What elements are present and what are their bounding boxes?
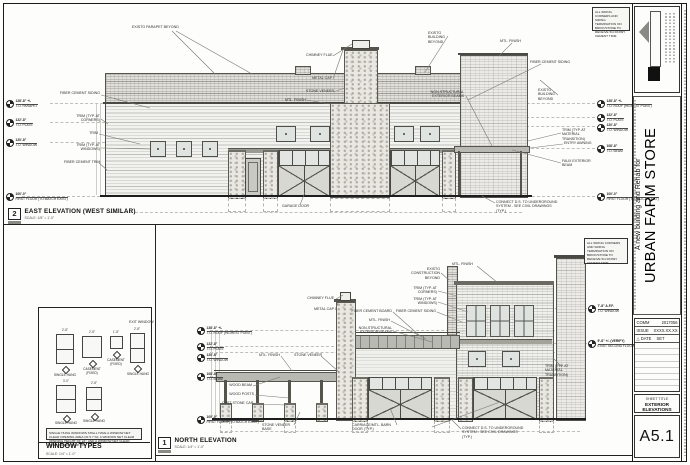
table-row: ISSUEXXXX.XX.XX bbox=[635, 327, 679, 335]
level-marker: 120'-8"T.O. WINDOW bbox=[197, 354, 228, 363]
north-parapet-cap bbox=[454, 281, 554, 285]
callout: METAL CAP bbox=[310, 76, 332, 80]
datum-icon bbox=[597, 114, 605, 122]
foundation bbox=[330, 198, 390, 212]
detail-number: 1 bbox=[158, 437, 171, 449]
level-name: T.O. PLATE bbox=[207, 348, 224, 352]
firm-address-text bbox=[665, 13, 667, 63]
datum-icon bbox=[6, 139, 14, 147]
callout: NON-STRUCTURAL EXTERIOR BEAMS bbox=[430, 90, 464, 99]
callout: TRIM (TYP. AT WINDOWS) bbox=[405, 297, 437, 306]
callout: STONE VENEER bbox=[306, 89, 332, 93]
garage-x-panel bbox=[474, 390, 536, 419]
level-marker: 122'-8"T.O. PLATE bbox=[6, 119, 33, 128]
date-value: SET bbox=[654, 336, 680, 341]
region-divider bbox=[155, 224, 156, 462]
level-name: T.O. BEAM bbox=[207, 378, 223, 382]
datum-icon bbox=[597, 124, 605, 132]
callout: ENTRY AWNING bbox=[564, 141, 592, 145]
porch-post bbox=[288, 380, 291, 403]
level-name: T.O. BEAM bbox=[607, 150, 623, 154]
east-window bbox=[276, 126, 296, 142]
east-roof-flue bbox=[415, 66, 431, 75]
north-window bbox=[468, 351, 486, 367]
window-label: SINGLE HUNG bbox=[48, 374, 82, 378]
level-name: T.O. WINDOW bbox=[598, 310, 619, 314]
firm-logo-bar bbox=[650, 11, 661, 67]
datum-icon bbox=[597, 193, 605, 201]
porch-post bbox=[224, 380, 227, 403]
window-type bbox=[56, 334, 74, 364]
siding-note: ALL SIDING CORNERS AND SIDING TERMINATIO… bbox=[584, 238, 628, 264]
region-divider bbox=[155, 455, 632, 456]
level-marker: 122'-8"T.O. PLATE bbox=[597, 114, 624, 123]
east-stone-mass bbox=[330, 103, 390, 198]
north-exterior-beams bbox=[350, 335, 460, 349]
titleblock-edge bbox=[681, 3, 682, 462]
firm-address-text bbox=[669, 13, 671, 63]
east-garage-door bbox=[278, 150, 330, 196]
window-type bbox=[56, 385, 76, 413]
foundation bbox=[263, 198, 278, 212]
east-existing-building bbox=[460, 55, 528, 198]
drawing-name: EAST ELEVATION (WEST SIMILAR) bbox=[25, 208, 136, 215]
table-row: △ DATESET bbox=[635, 335, 679, 343]
datum-icon bbox=[197, 416, 205, 424]
sheet-number: A5.1 bbox=[640, 428, 675, 446]
window-dim: 2'-8" bbox=[81, 381, 107, 385]
firm-logo-mark bbox=[648, 67, 660, 81]
window-types-title: WINDOW TYPES bbox=[46, 443, 102, 450]
callout: TRIM (TYP. AT MATERIAL TRANSITION) bbox=[545, 364, 581, 377]
north-carriage-door bbox=[368, 377, 432, 419]
east-stone-pier bbox=[263, 150, 278, 199]
detail-sub bbox=[158, 450, 171, 453]
callout: GARAGE DOOR bbox=[282, 204, 309, 208]
datum-icon bbox=[6, 119, 14, 127]
east-existing-parapet-cap bbox=[458, 53, 528, 55]
callout: MTL. FINISH bbox=[452, 262, 473, 266]
date-label: △ DATE bbox=[635, 336, 654, 341]
east-window bbox=[202, 141, 218, 157]
window-rail bbox=[57, 349, 73, 350]
north-existing-brick-building bbox=[556, 258, 586, 421]
sheet-title-box: SHEET TITLE EXTERIOR ELEVATIONS bbox=[634, 394, 680, 413]
garage-transom bbox=[369, 378, 431, 390]
east-awning-post bbox=[458, 151, 460, 196]
east-drawing-title: 2 EAST ELEVATION (WEST SIMILAR) SCALE: 1… bbox=[8, 208, 136, 224]
callout: FIBER CEMENT TRIM bbox=[64, 160, 98, 164]
window-label: SINGLE HUNG bbox=[121, 373, 155, 377]
exit-window-note: EXIT WINDOW bbox=[129, 320, 154, 324]
foundation bbox=[442, 198, 456, 212]
north-existing-cap bbox=[554, 255, 586, 258]
callout: MTL. FINISH bbox=[500, 39, 521, 43]
level-marker: 128'-8" +/-T.O. ROOF (HIGHEST POINT) bbox=[197, 327, 252, 336]
north-upper-window bbox=[466, 305, 486, 337]
datum-icon bbox=[6, 100, 14, 108]
north-window bbox=[502, 351, 520, 367]
callout: MTL. FINISH bbox=[256, 353, 280, 357]
callout: FIBER CEMENT SIDING bbox=[530, 60, 570, 64]
callout: MTL. FINISH bbox=[360, 318, 390, 322]
issue-label: ISSUE bbox=[635, 328, 654, 333]
copyright-strip bbox=[684, 10, 686, 456]
east-window bbox=[394, 126, 414, 142]
firm-logo-icon bbox=[639, 21, 649, 43]
east-stone-pier bbox=[228, 150, 246, 199]
datum-icon bbox=[197, 327, 205, 335]
level-marker: 9'-8" +/- (VERIFY)EXIST SECOND FLOOR bbox=[588, 340, 634, 349]
east-window bbox=[420, 126, 440, 142]
datum-icon bbox=[588, 305, 596, 313]
east-entry-door bbox=[245, 158, 261, 196]
table-row bbox=[635, 386, 679, 391]
window-rail bbox=[57, 399, 75, 400]
region-divider bbox=[4, 224, 632, 225]
level-name: T.O. ROOF (HIGHEST POINT) bbox=[207, 332, 252, 336]
callout: METAL CAP bbox=[312, 307, 334, 311]
east-stone-pier bbox=[442, 150, 456, 199]
level-name: EXIST SECOND FLOOR bbox=[598, 345, 635, 349]
window-type bbox=[82, 336, 102, 358]
window-types-scale: SCALE: 1/4" = 1'-0" bbox=[46, 452, 76, 456]
callout: FIBER CEMENT SIDING bbox=[394, 309, 436, 313]
siding-note: ALL SIDING CORNERS AND SIDING TERMINATIO… bbox=[592, 7, 630, 31]
garage-transom bbox=[474, 378, 536, 390]
level-marker: 122'-8"T.O. PLATE bbox=[197, 343, 224, 352]
project-name: URBAN FARM STORE bbox=[643, 97, 659, 314]
datum-icon bbox=[197, 373, 205, 381]
callout: CONNECT D.S. TO UNDERGROUND SYSTEM - SEE… bbox=[496, 200, 560, 213]
callout: EXISTG CONSTRUCTION BEYOND bbox=[404, 267, 440, 280]
east-grade-line bbox=[100, 195, 532, 197]
window-label: CASEMENT (FIXED) bbox=[102, 359, 130, 367]
level-marker: 7'-8" A.F.F.T.O. WINDOW bbox=[588, 305, 619, 314]
garage-x-panel bbox=[391, 166, 439, 196]
east-chimney bbox=[344, 50, 378, 106]
callout: WOOD POSTS bbox=[228, 392, 254, 396]
garage-transom bbox=[279, 151, 329, 166]
north-stone-pier bbox=[539, 377, 554, 422]
datum-icon bbox=[597, 100, 605, 108]
window-dim: 2'-8" bbox=[79, 330, 105, 334]
callout: FAUX EXTERIOR BEAM bbox=[562, 159, 596, 168]
north-carriage-door bbox=[473, 377, 537, 419]
foundation-line bbox=[110, 212, 522, 213]
window-type bbox=[130, 333, 145, 363]
sheet-title: EXTERIOR ELEVATIONS bbox=[635, 402, 679, 412]
window-dim: 3'-0" bbox=[53, 379, 79, 383]
callout: STONE VENEER BASE bbox=[262, 423, 294, 432]
callout: CHIMNEY FLUE bbox=[306, 296, 334, 300]
callout: CAST STONE CAP bbox=[222, 401, 253, 405]
window-label: SINGLE HUNG bbox=[77, 420, 111, 424]
callout: TRIM (TYP. AT CORNERS) bbox=[68, 114, 100, 123]
level-name: T.O. WINDOW bbox=[16, 144, 37, 148]
garage-transom bbox=[391, 151, 439, 166]
level-name: T.O. WINDOW bbox=[207, 359, 228, 363]
datum-icon bbox=[597, 145, 605, 153]
foundation bbox=[228, 198, 246, 212]
callout: WOOD BEAM bbox=[228, 383, 252, 387]
porch-wood-beam bbox=[216, 372, 348, 382]
north-stone-pier bbox=[352, 377, 368, 422]
datum-icon bbox=[197, 354, 205, 362]
callout: CONNECT D.S. TO UNDERGROUND SYSTEM - SEE… bbox=[462, 426, 528, 439]
callout: NON-STRUCTURAL EXTERIOR BEAMS bbox=[348, 326, 392, 335]
east-window bbox=[150, 141, 166, 157]
datum-icon bbox=[588, 340, 596, 348]
window-label: CASEMENT (FIXED) bbox=[78, 368, 106, 376]
datum-icon bbox=[6, 193, 14, 201]
detail-bubble: 2 bbox=[8, 208, 21, 224]
firm-address-text bbox=[673, 13, 675, 63]
north-stone-pier bbox=[458, 377, 473, 422]
callout: TRIM (TYP. AT CORNERS) bbox=[407, 286, 437, 295]
detail-bubble: 1 bbox=[158, 437, 171, 453]
east-parapet-cap bbox=[103, 102, 462, 104]
level-marker: 120'-8"T.O. WINDOW bbox=[597, 124, 628, 133]
egress-note: SINGLE HUNG WINDOWS SHALL HAVE A WINDOW … bbox=[46, 428, 142, 440]
callout: MTL. FINISH bbox=[284, 98, 306, 102]
callout: FIBER CEMENT BOARD bbox=[350, 309, 392, 313]
east-chimney-flue bbox=[352, 40, 370, 49]
level-name: FIRST FLOOR (TO MATCH EXIST) bbox=[16, 198, 68, 202]
north-grade-line bbox=[212, 418, 586, 420]
garage-x-panel bbox=[279, 166, 329, 196]
callout: STONE VENEER bbox=[294, 353, 320, 357]
porch-post bbox=[320, 380, 323, 403]
window-rail bbox=[131, 348, 144, 349]
callout: CHIMNEY FLUE bbox=[306, 53, 332, 57]
level-line bbox=[532, 196, 595, 197]
callout: EXISTG PARAPET BEYOND bbox=[132, 25, 179, 29]
issue-table: COMM2017056 ISSUEXXXX.XX.XX △ DATESET bbox=[634, 318, 680, 392]
drawing-scale: SCALE: 1/4" = 1'-0" bbox=[175, 445, 237, 449]
issue-value: XXXX.XX.XX bbox=[654, 328, 680, 333]
east-garage-door bbox=[390, 150, 440, 196]
level-marker: 120'-8"T.O. WINDOW bbox=[6, 139, 37, 148]
porch-post bbox=[256, 380, 259, 403]
east-awning-post bbox=[520, 151, 522, 196]
callout: TRIM bbox=[84, 131, 98, 135]
level-name: T.O. WINDOW bbox=[607, 129, 628, 133]
north-drawing-title: 1 NORTH ELEVATION SCALE: 1/4" = 1'-0" bbox=[158, 437, 237, 453]
firm-logo-box bbox=[634, 6, 680, 93]
level-name: T.O. PARAPET bbox=[16, 105, 38, 109]
callout: FIBER CEMENT SIDING bbox=[58, 91, 100, 95]
sheet-title-label: SHEET TITLE bbox=[635, 397, 679, 401]
window-type bbox=[110, 336, 123, 349]
comm-value: 2017056 bbox=[654, 320, 680, 325]
sheet-number-box: A5.1 bbox=[634, 415, 680, 458]
north-stone-pier bbox=[434, 377, 450, 422]
datum-icon bbox=[197, 343, 205, 351]
level-marker: 108'-8"T.O. BEAM bbox=[197, 373, 223, 382]
level-name: T.O. PLATE bbox=[16, 124, 33, 128]
north-trim-band bbox=[456, 339, 552, 344]
drawing-sheet: 128'-8" +/-T.O. PARAPET 122'-8"T.O. PLAT… bbox=[0, 0, 690, 465]
east-window bbox=[310, 126, 330, 142]
project-title-block: A new building and Rehab for URBAN FARM … bbox=[633, 96, 681, 315]
east-entry-awning-beam bbox=[454, 146, 530, 153]
drawing-name: NORTH ELEVATION bbox=[175, 437, 237, 444]
callout: TRIM (TYP. AT WINDOWS) bbox=[66, 143, 100, 152]
level-marker: 100'-0"FIRST FLOOR (TO MATCH EXIST) bbox=[197, 416, 259, 425]
callout: CARRIAGE/MTL. BARN DOOR (TYP.) bbox=[352, 423, 396, 432]
garage-x-panel bbox=[369, 390, 431, 419]
project-subtitle: A new building and Rehab for bbox=[635, 97, 642, 312]
level-name: FIRST FLOOR (TO MATCH EXIST) bbox=[207, 421, 259, 425]
dimension-line bbox=[100, 104, 101, 195]
porch-roof-line bbox=[214, 370, 350, 371]
window-rail bbox=[87, 399, 101, 400]
level-marker: 128'-8" +/-T.O. PARAPET bbox=[6, 100, 38, 109]
callout: TRIM (TYP. AT MATERIAL TRANSITION) bbox=[562, 128, 596, 141]
level-marker: 108'-8"T.O. BEAM bbox=[597, 145, 623, 154]
table-row: COMM2017056 bbox=[635, 319, 679, 327]
comm-label: COMM bbox=[635, 320, 654, 325]
east-roof-flue bbox=[295, 66, 311, 75]
detail-number: 2 bbox=[8, 208, 21, 220]
north-chimney-flue bbox=[340, 292, 351, 301]
east-window bbox=[176, 141, 192, 157]
window-type bbox=[86, 387, 102, 411]
north-upper-window bbox=[514, 305, 534, 337]
level-marker: 100'-0"FIRST FLOOR (TO MATCH EXIST) bbox=[6, 193, 68, 202]
window-dim: 2'-8" bbox=[52, 328, 78, 332]
callout: EXISTG BUILDING BEYOND bbox=[538, 88, 568, 101]
window-dim: 2'-8" bbox=[124, 327, 150, 331]
drawing-scale: SCALE: 1/8" = 1'-0" bbox=[25, 216, 136, 220]
north-upper-window bbox=[490, 305, 510, 337]
callout: EXISTG BUILDING BEYOND bbox=[428, 31, 458, 44]
